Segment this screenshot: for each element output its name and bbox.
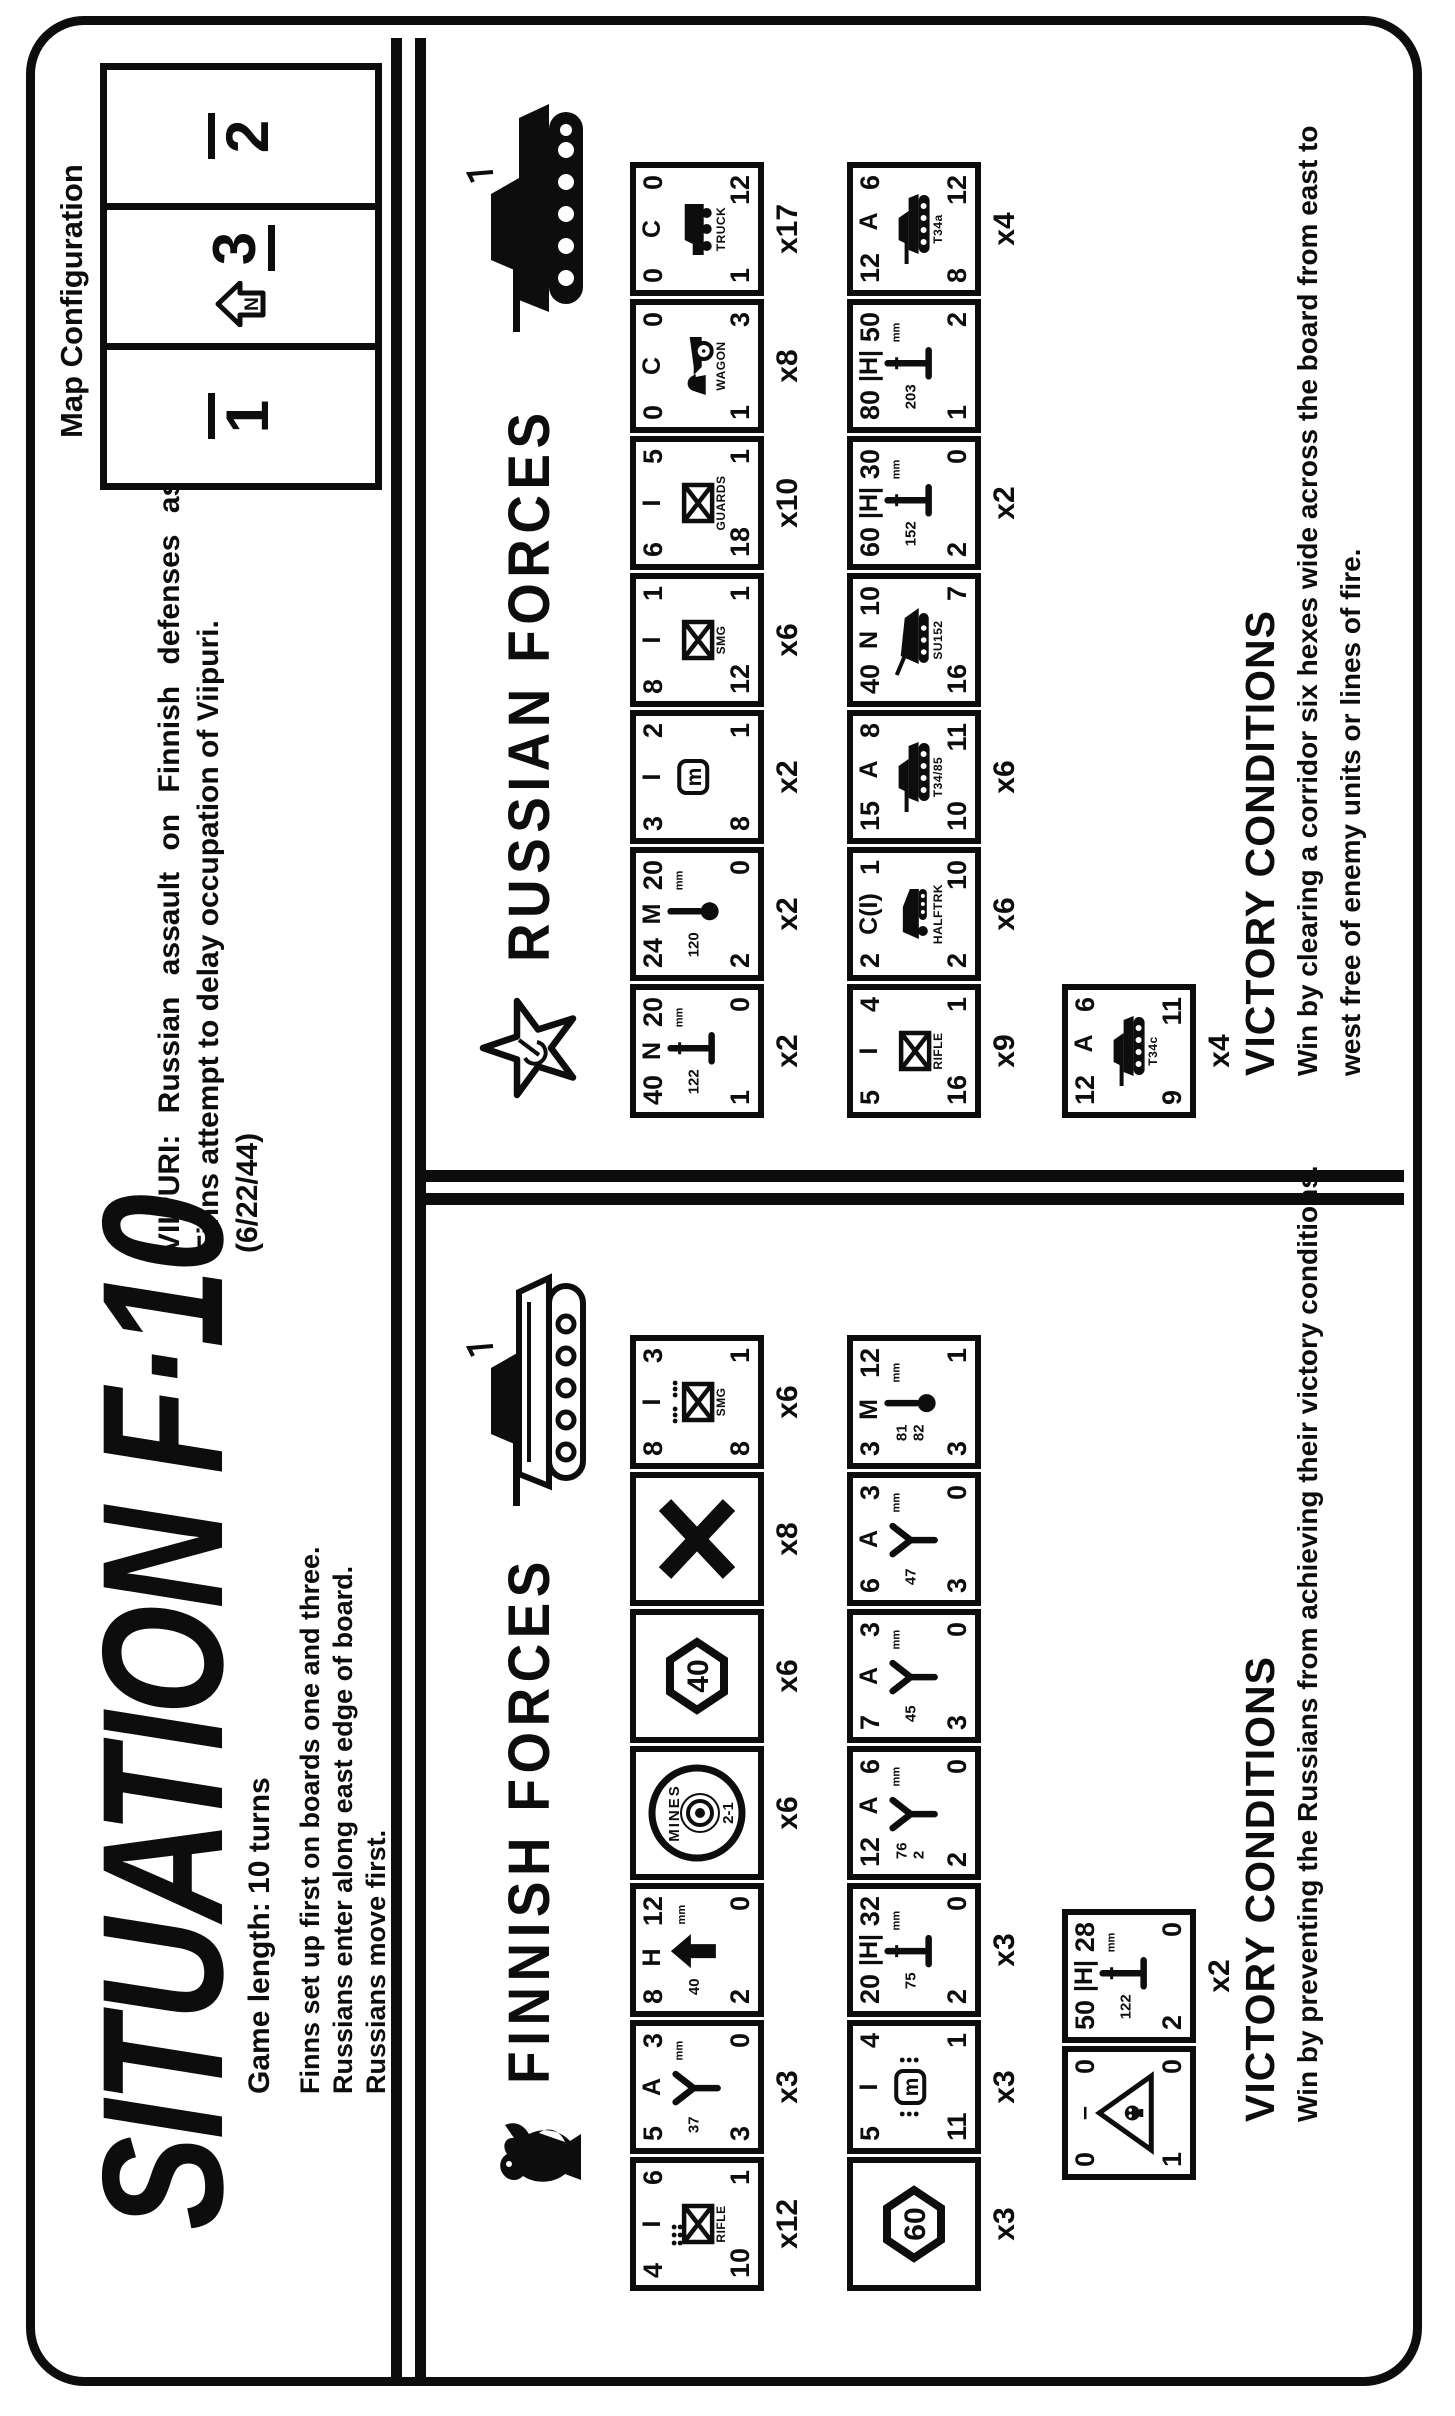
- counter-stats-top: 4I6: [640, 2170, 667, 2278]
- board-digit: 1: [214, 400, 281, 433]
- stat: 2: [857, 953, 884, 968]
- counter-rifle: 4I6 RIFLE101: [630, 2157, 764, 2291]
- stat: M: [640, 904, 667, 925]
- strip-divider: [415, 38, 426, 2378]
- counter-cell: 20|H|3275 mm20x3: [847, 1883, 1024, 2017]
- movement-value: 2: [944, 312, 971, 327]
- caliber-unit: mm: [891, 1767, 903, 1787]
- counter-smg: 8I1 SMG121: [630, 573, 764, 707]
- movement-value: 0: [727, 997, 754, 1012]
- counter-cell: 5A337 mm30x3: [630, 2020, 807, 2154]
- counter-icon-row: [892, 740, 932, 814]
- counter-stats-bottom: 101: [727, 2170, 754, 2278]
- emblem: [473, 2118, 585, 2204]
- counter-stats-top: 40N20: [640, 997, 667, 1105]
- counter-stats-top: 0C0: [640, 312, 667, 420]
- caliber-unit: mm: [674, 2041, 686, 2061]
- counter-row: 12A6 T34c911x4: [1062, 984, 1239, 1118]
- counter-stats-bottom: 20: [944, 1759, 971, 1867]
- counter-row: 4I6 RIFLE101x125A337 mm30x38H1240 mm20 M…: [630, 1335, 807, 2291]
- stat: 15: [857, 801, 884, 831]
- caliber-unit: mm: [1106, 1933, 1118, 1953]
- stat: 0: [640, 175, 667, 190]
- caliber-value: 75: [902, 1972, 919, 1989]
- stat: 32: [857, 1896, 884, 1926]
- counter-multiplier: x10: [771, 478, 807, 528]
- counter-ygun: 5A337 mm30: [630, 2020, 764, 2154]
- stat: 12: [640, 1896, 667, 1926]
- board-number: 3: [205, 226, 278, 272]
- defense-value: 16: [944, 1075, 971, 1105]
- counter-icon-row: 152 mm: [883, 460, 939, 547]
- at-gun-icon: [883, 1651, 939, 1703]
- counter-stats-top: 0C0: [640, 175, 667, 283]
- counter-multiplier: x3: [771, 2070, 807, 2103]
- stat: 10: [857, 586, 884, 616]
- truck-icon: [676, 198, 714, 260]
- counter-cell: 12A6 T34c911x4: [1062, 984, 1239, 1118]
- counter-stats-top: 20|H|32: [857, 1896, 884, 2004]
- movement-value: 12: [727, 175, 754, 205]
- movement-value: 1: [944, 1348, 971, 1363]
- counter-stats-bottom: 1011: [944, 723, 971, 831]
- infantry-icon: [670, 470, 718, 536]
- counter-stats-bottom: 812: [944, 175, 971, 283]
- block-x-icon: [651, 1493, 743, 1585]
- counter-cell: 7A345 mm30: [847, 1609, 1024, 1743]
- tank-icon: [892, 192, 932, 266]
- victory-text: Win by clearing a corridor six hexes wid…: [1288, 126, 1327, 1076]
- counter-guards: 6I5 GUARDS181: [630, 436, 764, 570]
- stat: 3: [640, 1348, 667, 1363]
- russian-forces-panel: RUSSIAN FORCES 40N20122 mm10x224M20120 m…: [429, 36, 1407, 1166]
- scenario-line: Finns attempt to delay occupation of Vii…: [189, 480, 228, 1253]
- mortar-icon: [666, 892, 722, 930]
- movement-value: 1: [944, 2033, 971, 2048]
- stat: I: [857, 2084, 884, 2091]
- counter-stats-top: 15A8: [857, 723, 884, 831]
- counter-multiplier: x2: [771, 760, 807, 793]
- movement-value: 0: [1159, 2059, 1186, 2074]
- stat: 6: [1072, 997, 1099, 1012]
- counter-mbox: 5I4 m111: [847, 2020, 981, 2154]
- stat: I: [640, 500, 667, 507]
- counter-multiplier: x3: [988, 2207, 1024, 2240]
- stat: 12: [857, 253, 884, 283]
- stat: 6: [857, 1578, 884, 1593]
- counter-icon-row: [1107, 1014, 1147, 1088]
- board-number-group: N3: [205, 226, 278, 328]
- map-configuration: 1 N32: [100, 70, 382, 490]
- counter-stats-top: 2C(I)1: [857, 860, 884, 968]
- counter-stats-bottom: 20: [727, 860, 754, 968]
- tank-icon: [1107, 1014, 1147, 1088]
- stat: 1: [857, 860, 884, 875]
- counter-multiplier: x2: [988, 486, 1024, 519]
- artillery-icon: [666, 1029, 722, 1067]
- counter-cell: x8: [630, 1472, 807, 1606]
- strip-divider: [391, 38, 402, 2378]
- stat: 3: [640, 2033, 667, 2048]
- mine-triangle-icon: [1094, 2071, 1156, 2155]
- stat: 5: [640, 2126, 667, 2141]
- counter-stats-top: 12A6: [857, 175, 884, 283]
- defense-value: 3: [944, 1715, 971, 1730]
- counter-multiplier: x3: [988, 2070, 1024, 2103]
- counter-stats-top: 8I1: [640, 586, 667, 694]
- counter-stats-top: 12A6: [1072, 997, 1099, 1105]
- stat: 3: [857, 1485, 884, 1500]
- counter-stats-bottom: 20: [944, 449, 971, 557]
- stat: A: [857, 760, 884, 778]
- mg-box-icon: m: [671, 744, 717, 810]
- counter-icon-row: 120 mm: [666, 871, 722, 958]
- counter-multiplier: x2: [1203, 1959, 1239, 1992]
- defense-value: 3: [944, 1578, 971, 1593]
- counter-multiplier: x4: [988, 212, 1024, 245]
- game-length: Game length: 10 turns: [243, 1546, 277, 2094]
- stat: 8: [640, 679, 667, 694]
- stat: 4: [857, 997, 884, 1012]
- counter-cell: 8I3 SMG81x6: [630, 1335, 807, 1469]
- counter-cell: 0–0 10: [1062, 2046, 1239, 2180]
- counter-cell: 8H1240 mm20: [630, 1883, 807, 2017]
- stat: 4: [857, 2033, 884, 2048]
- caliber-value: 122: [1117, 1994, 1134, 2019]
- counter-stats-bottom: 30: [727, 2033, 754, 2141]
- counter-cell: 3I2 m81x2: [630, 710, 807, 844]
- counter-multiplier: x6: [771, 1659, 807, 1692]
- counter-row: 40N20122 mm10x224M20120 mm20x23I2 m81x28…: [630, 162, 807, 1118]
- movement-value: 1: [727, 586, 754, 601]
- north-arrow: N: [215, 282, 267, 328]
- caliber-unit: mm: [674, 1008, 686, 1028]
- defense-value: 2: [727, 1989, 754, 2004]
- stat: 20: [640, 997, 667, 1027]
- stat: 12: [857, 1837, 884, 1867]
- counter-cell: 3M1281 82 mm31: [847, 1335, 1024, 1469]
- counter-icon-row: [676, 333, 714, 399]
- stat: C: [640, 357, 667, 375]
- svg-text:60: 60: [899, 2207, 932, 2240]
- counter-icon-row: [894, 883, 930, 945]
- counter-stats-bottom: 30: [944, 1622, 971, 1730]
- counter-wagon: 0C0 WAGON13: [630, 299, 764, 433]
- finnish-forces-panel: FINNISH FORCES 4I6 RIFLE101x125A337 mm30…: [429, 1210, 1407, 2374]
- page-title: SITUATION F·10: [64, 1197, 262, 2230]
- defense-value: 9: [1159, 1090, 1186, 1105]
- stat: 6: [857, 1759, 884, 1774]
- counter-icon-row: [887, 1018, 935, 1084]
- counter-halftrk: 2C(I)1 HALFTRK210: [847, 847, 981, 981]
- counter-stats-top: 7A3: [857, 1622, 884, 1730]
- counter-stats-top: 8H12: [640, 1896, 667, 2004]
- movement-value: 0: [1159, 1922, 1186, 1937]
- movement-value: 1: [944, 997, 971, 1012]
- counter-multiplier: x6: [771, 1385, 807, 1418]
- counter-gun: 40N20122 mm10: [630, 984, 764, 1118]
- stat: 40: [857, 664, 884, 694]
- scenario-line: (6/22/44): [228, 480, 267, 1253]
- counter-gun: 60|H|30152 mm20: [847, 436, 981, 570]
- counter-cell: 5I4 RIFLE161x9: [847, 984, 1024, 1118]
- caliber-unit: mm: [891, 460, 903, 480]
- counter-cell: 40x6: [630, 1609, 807, 1743]
- infantry-icon: [887, 1018, 935, 1084]
- stat: |H|: [857, 487, 884, 519]
- counter-cell: 2C(I)1 HALFTRK210x6: [847, 847, 1024, 981]
- scenario-description: VIIPURI: Russian assault on Finnish defe…: [150, 480, 267, 1253]
- counter-stats-top: 5I4: [857, 997, 884, 1105]
- stat: I: [857, 1048, 884, 1055]
- stat: A: [857, 1530, 884, 1548]
- svg-text:40: 40: [682, 1659, 715, 1692]
- defense-value: 2: [944, 953, 971, 968]
- defense-value: 10: [944, 801, 971, 831]
- caliber-value: 81 82: [894, 1424, 928, 1441]
- counter-icon-row: m: [671, 744, 717, 810]
- counter-stats-top: 6I5: [640, 449, 667, 557]
- defense-value: 1: [727, 268, 754, 283]
- counter-icon-row: [1094, 2071, 1156, 2155]
- counter-hex: 40: [630, 1609, 764, 1743]
- counter-stats-bottom: 210: [944, 860, 971, 968]
- halftrack-icon: [894, 883, 930, 945]
- counter-cell: 4I6 RIFLE101x12: [630, 2157, 807, 2291]
- artillery-icon: [883, 481, 939, 519]
- panel-header: FINNISH FORCES: [439, 1210, 619, 2374]
- counter-multiplier: x6: [771, 1796, 807, 1829]
- counter-bigx: [630, 1472, 764, 1606]
- counter-su152: 40N10 SU152167: [847, 573, 981, 707]
- game-info: Game length: 10 turns Finns set up first…: [243, 1546, 393, 2094]
- counter-cell: 40N20122 mm10x2: [630, 984, 807, 1118]
- defense-value: 10: [727, 2248, 754, 2278]
- movement-value: 10: [944, 860, 971, 890]
- infantry-icon: [670, 2191, 718, 2257]
- counter-stats-top: 12A6: [857, 1759, 884, 1867]
- stat: H: [640, 1948, 667, 1966]
- counter-cell: 40N10 SU152167: [847, 573, 1024, 707]
- stat: 24: [640, 938, 667, 968]
- counter-cell: 24M20120 mm20x2: [630, 847, 807, 981]
- scenario-card: SITUATION F·10 Game length: 10 turns Fin…: [0, 0, 1455, 2416]
- stat: 8: [640, 1441, 667, 1456]
- stat: 3: [857, 1622, 884, 1637]
- stat: 2: [640, 723, 667, 738]
- tank-icon: [892, 740, 932, 814]
- counter-stats-bottom: 20: [944, 1896, 971, 2004]
- panel-header: RUSSIAN FORCES: [439, 36, 619, 1166]
- board-box: N3: [100, 203, 382, 350]
- counter-mbox: 3I2 m81: [630, 710, 764, 844]
- board-box: 2: [100, 63, 382, 210]
- counter-multiplier: x2: [771, 897, 807, 930]
- stat: M: [857, 1399, 884, 1420]
- movement-value: 1: [727, 723, 754, 738]
- movement-value: 0: [944, 1485, 971, 1500]
- counter-icon-row: [893, 602, 931, 678]
- movement-value: 0: [727, 2033, 754, 2048]
- stat: 6: [640, 542, 667, 557]
- counter-stats-bottom: 167: [944, 586, 971, 694]
- stat: I: [640, 1399, 667, 1406]
- defense-value: 3: [944, 1441, 971, 1456]
- setup-rules: Finns set up first on boards one and thr…: [294, 1546, 393, 2094]
- defense-value: 2: [944, 542, 971, 557]
- victory-text: Win by preventing the Russians from achi…: [1288, 1165, 1327, 2122]
- stat: 5: [857, 1090, 884, 1105]
- counter-t34a: 12A6 T34a812: [847, 162, 981, 296]
- board-number-group: 1: [205, 394, 278, 440]
- board-bar: [268, 226, 275, 272]
- counter-icon-row: 40 mm: [668, 1905, 720, 1995]
- counter-cell: 50|H|28122 mm20x2: [1062, 1909, 1239, 2043]
- counter-mines: MINES 2-1: [630, 1746, 764, 1880]
- caliber-value: 45: [902, 1705, 919, 1722]
- caliber-unit: mm: [891, 1493, 903, 1513]
- tank-art: [463, 1256, 595, 1508]
- svg-text:2-1: 2-1: [720, 1802, 737, 1824]
- counter-cell: 80|H|50203 mm12: [847, 299, 1024, 433]
- caliber-unit: mm: [891, 1911, 903, 1931]
- stat: 50: [1072, 2000, 1099, 2030]
- counter-stats-bottom: 121: [727, 586, 754, 694]
- victory-text: west free of enemy units or lines of fir…: [1331, 126, 1370, 1076]
- counter-multiplier: x8: [771, 1522, 807, 1555]
- defense-value: 8: [727, 816, 754, 831]
- counter-multiplier: x17: [771, 204, 807, 254]
- stat: 6: [640, 2170, 667, 2185]
- stat: A: [1072, 1034, 1099, 1052]
- stat: 12: [857, 1348, 884, 1378]
- stat: N: [640, 1042, 667, 1060]
- defense-value: 2: [944, 1989, 971, 2004]
- counter-cell: 15A8 T34/851011x6: [847, 710, 1024, 844]
- stat: I: [640, 637, 667, 644]
- counter-rifle: 5I4 RIFLE161: [847, 984, 981, 1118]
- stat: 0: [640, 268, 667, 283]
- aa-gun-icon: [668, 1926, 720, 1976]
- counter-icon-row: 75 mm: [883, 1911, 939, 1989]
- counter-cell: 60x3: [847, 2157, 1024, 2291]
- counter-stats-top: 60|H|30: [857, 449, 884, 557]
- caliber-unit: mm: [676, 1905, 688, 1925]
- counter-t34/85: 15A8 T34/851011: [847, 710, 981, 844]
- victory-heading: VICTORY CONDITIONS: [1237, 1165, 1284, 2122]
- counter-tri: 0–0 10: [1062, 2046, 1196, 2180]
- counter-hex: 60: [847, 2157, 981, 2291]
- counter-multiplier: x3: [988, 1933, 1024, 1966]
- counter-smg: 8I3 SMG81: [630, 1335, 764, 1469]
- counter-stats-top: 5I4: [857, 2033, 884, 2141]
- mortar-icon: [883, 1384, 939, 1422]
- stat: A: [640, 2078, 667, 2096]
- board-number-group: 2: [205, 114, 278, 160]
- counter-cell: 0C0 WAGON13x8: [630, 299, 807, 433]
- infantry-icon: [670, 607, 718, 673]
- svg-text:m: m: [900, 2078, 923, 2097]
- counter-cell: 12A676 2 mm20: [847, 1746, 1024, 1880]
- defense-value: 16: [944, 664, 971, 694]
- stat: 5: [640, 449, 667, 464]
- map-configuration-heading: Map Configuration: [54, 164, 90, 438]
- defense-value: 3: [727, 2126, 754, 2141]
- counter-stats-bottom: 12: [944, 312, 971, 420]
- counter-icon-row: [676, 198, 714, 260]
- counter-cell: 60|H|30152 mm20x2: [847, 436, 1024, 570]
- counter-stats-top: 80|H|50: [857, 312, 884, 420]
- board-number: 1: [208, 394, 278, 440]
- defense-value: 2: [1159, 2015, 1186, 2030]
- stat: 1: [640, 586, 667, 601]
- counter-icon-row: [670, 2191, 718, 2257]
- caliber-unit: mm: [891, 323, 903, 343]
- svg-text:N: N: [242, 298, 263, 312]
- movement-value: 0: [944, 1896, 971, 1911]
- movement-value: 0: [727, 1896, 754, 1911]
- counter-icon-row: [670, 607, 718, 673]
- setup-rule: Finns set up first on boards one and thr…: [294, 1546, 327, 2094]
- movement-value: 0: [944, 1759, 971, 1774]
- panel-title: FINNISH FORCES: [496, 1556, 563, 2084]
- counter-multiplier: x8: [771, 349, 807, 382]
- movement-value: 7: [944, 586, 971, 601]
- stat: 3: [640, 816, 667, 831]
- at-gun-icon: [883, 1788, 939, 1840]
- caliber-unit: mm: [891, 1630, 903, 1650]
- counter-ygun: 7A345 mm30: [847, 1609, 981, 1743]
- defense-value: 8: [944, 268, 971, 283]
- counter-multiplier: x6: [771, 623, 807, 656]
- defense-value: 11: [944, 2112, 971, 2141]
- counter-icon-row: [670, 470, 718, 536]
- stat: 40: [640, 1075, 667, 1105]
- counter-row: 0–0 1050|H|28122 mm20x2: [1062, 1909, 1239, 2180]
- counter-row: 5I4 RIFLE161x92C(I)1 HALFTRK210x615A8 T3…: [847, 162, 1024, 1118]
- stat: 0: [640, 312, 667, 327]
- counter-gun: 20|H|3275 mm20: [847, 1883, 981, 2017]
- counter-stats-bottom: 112: [727, 175, 754, 283]
- counter-icon-row: [670, 1369, 718, 1435]
- counter-icon-row: 203 mm: [883, 323, 939, 410]
- counter-stats-bottom: 20: [727, 1896, 754, 2004]
- at-gun-icon: [666, 2062, 722, 2114]
- artillery-icon: [883, 344, 939, 382]
- counter-multiplier: x9: [988, 1034, 1024, 1067]
- artillery-icon: [883, 1932, 939, 1970]
- victory-conditions: VICTORY CONDITIONSWin by clearing a corr…: [1237, 126, 1370, 1076]
- counter-stats-bottom: 20: [1159, 1922, 1186, 2030]
- svg-text:m: m: [683, 768, 706, 787]
- defense-value: 1: [727, 1090, 754, 1105]
- tank-art: [463, 82, 595, 334]
- soviet-star-icon: [479, 996, 579, 1100]
- counter-gun: 80|H|50203 mm12: [847, 299, 981, 433]
- counter-icon-row: 81 82 mm: [883, 1363, 939, 1441]
- movement-value: 0: [727, 860, 754, 875]
- movement-value: 3: [727, 312, 754, 327]
- counter-cell: 6I5 GUARDS181x10: [630, 436, 807, 570]
- north-arrow-icon: N: [215, 282, 267, 328]
- stat: C(I): [857, 893, 884, 935]
- counter-stats-bottom: 111: [944, 2033, 971, 2141]
- movement-value: 0: [944, 1622, 971, 1637]
- counter-icon-row: 47 mm: [883, 1493, 939, 1585]
- stat: 12: [1072, 1075, 1099, 1105]
- stat: 4: [640, 2263, 667, 2278]
- counter-gun: 50|H|28122 mm20: [1062, 1909, 1196, 2043]
